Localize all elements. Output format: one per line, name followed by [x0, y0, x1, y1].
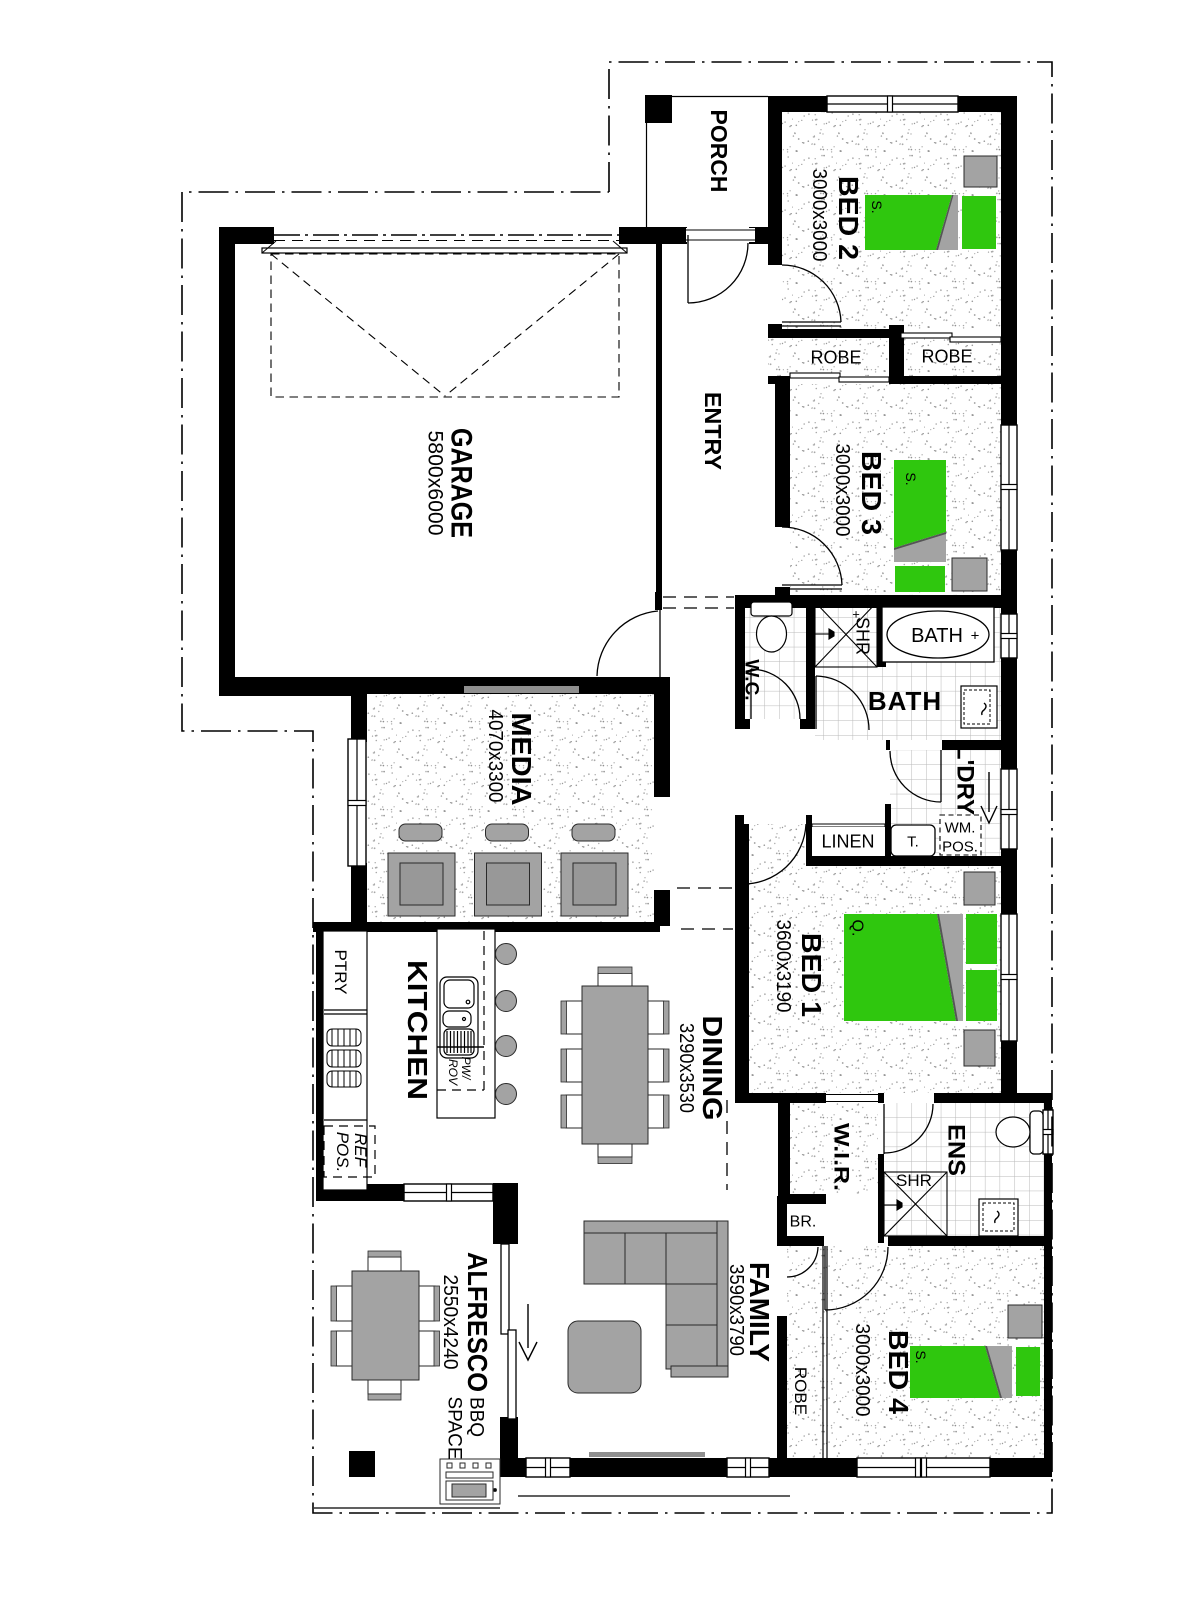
svg-text:LINEN: LINEN [821, 831, 874, 851]
svg-text:ROV: ROV [446, 1059, 460, 1086]
svg-text:MEDIA: MEDIA [506, 713, 537, 806]
svg-text:PW/: PW/ [459, 1057, 473, 1081]
svg-text:Q.: Q. [848, 920, 865, 937]
svg-text:BED 4: BED 4 [883, 1330, 914, 1414]
svg-text:2550x4240: 2550x4240 [439, 1275, 461, 1370]
svg-text:3590x3790: 3590x3790 [725, 1264, 747, 1356]
svg-text:SHR: SHR [896, 1171, 932, 1190]
svg-text:4070x3300: 4070x3300 [484, 710, 506, 803]
svg-text:BATH: BATH [868, 686, 942, 716]
svg-text:PORCH: PORCH [706, 110, 732, 193]
svg-text:S.: S. [869, 200, 885, 213]
svg-text:S.: S. [913, 1350, 929, 1363]
svg-text:ENS: ENS [943, 1124, 970, 1176]
svg-text:BR.: BR. [790, 1214, 817, 1231]
svg-text:+: + [852, 607, 860, 622]
svg-text:ROBE: ROBE [810, 347, 861, 367]
svg-text:DINING: DINING [697, 1016, 728, 1121]
svg-text:KITCHEN: KITCHEN [402, 960, 433, 1100]
svg-text:ROBE: ROBE [921, 346, 972, 366]
svg-text:3000x3000: 3000x3000 [851, 1324, 873, 1417]
svg-text:WM.: WM. [945, 819, 976, 836]
svg-text:BED 3: BED 3 [856, 451, 887, 535]
svg-text:S.: S. [903, 472, 919, 485]
svg-text:FAMILY: FAMILY [744, 1262, 775, 1362]
svg-text:ENTRY: ENTRY [700, 392, 726, 470]
svg-text:GARAGE: GARAGE [445, 428, 478, 538]
svg-text:5800x6000: 5800x6000 [424, 431, 447, 536]
svg-text:T.: T. [907, 833, 919, 850]
svg-text:BED 1: BED 1 [796, 933, 827, 1017]
svg-text:3290x3530: 3290x3530 [675, 1023, 697, 1113]
svg-text:REF: REF [351, 1133, 370, 1169]
svg-text:L'DRY: L'DRY [952, 745, 979, 815]
svg-text:ALFRESCO: ALFRESCO [462, 1252, 493, 1392]
svg-text:BED 2: BED 2 [833, 176, 864, 260]
svg-text:3600x3190: 3600x3190 [772, 920, 794, 1013]
svg-text:SHR: SHR [853, 617, 873, 655]
svg-text:SPACE: SPACE [443, 1396, 464, 1459]
svg-text:3000x3000: 3000x3000 [831, 444, 853, 537]
svg-text:+: + [971, 627, 980, 644]
svg-text:PTRY: PTRY [331, 949, 350, 994]
svg-text:POS.: POS. [942, 838, 978, 855]
svg-text:BBQ: BBQ [465, 1397, 486, 1437]
svg-text:3000x3000: 3000x3000 [808, 169, 830, 262]
svg-text:POS.: POS. [333, 1132, 352, 1173]
svg-text:ROBE: ROBE [791, 1367, 810, 1415]
svg-text:W.I.R.: W.I.R. [830, 1123, 853, 1191]
svg-text:BATH: BATH [911, 625, 963, 647]
svg-text:W.C.: W.C. [740, 659, 761, 700]
